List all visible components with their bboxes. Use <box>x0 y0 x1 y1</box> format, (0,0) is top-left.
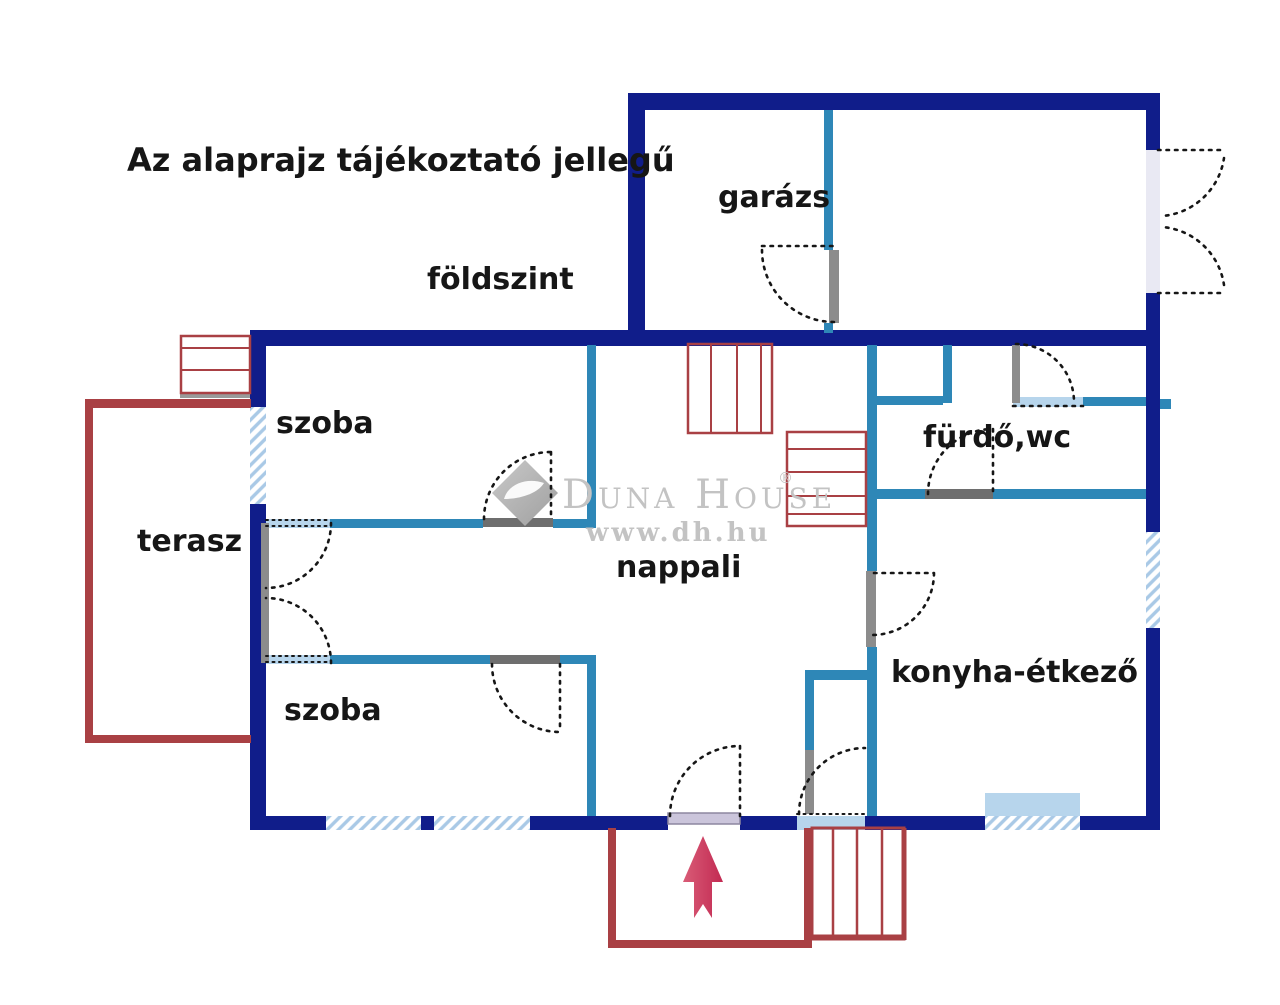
watermark: Duna House ® www.dh.hu <box>492 460 836 548</box>
entrance-arrow-icon <box>683 836 723 918</box>
garage-double-door-opening <box>1146 150 1160 293</box>
room-label-room-bottom: szoba <box>284 693 382 728</box>
terrace-door-swing-bottom <box>266 598 331 663</box>
room-label-terrace: terasz <box>137 524 242 559</box>
window-bottom-1 <box>326 816 421 830</box>
kitchen-door-swing <box>872 573 934 635</box>
window-left-wall <box>250 407 266 504</box>
floor-plan-page: Duna House ® www.dh.hu Az alaprajz tájék… <box>0 0 1280 1005</box>
vestibule-door-panel <box>805 750 814 814</box>
room-label-kitchen: konyha-étkező <box>891 655 1138 690</box>
terrace-door-swing-top <box>266 523 331 588</box>
garage-door-swing <box>762 246 834 322</box>
terrace-door-panel <box>261 523 269 663</box>
front-door-sill <box>668 813 740 824</box>
bath-door-threshold <box>925 489 993 499</box>
bath-hall-door-swing <box>1013 344 1083 406</box>
floor-title: földszint <box>427 262 574 297</box>
stairs-terrace <box>181 336 250 393</box>
watermark-registered: ® <box>778 469 793 487</box>
windows <box>250 407 1160 830</box>
garage-door-panel <box>829 250 839 323</box>
room-bottom-door-threshold <box>490 655 560 664</box>
front-door-swing <box>670 746 740 816</box>
room-bottom-door-swing <box>492 664 560 732</box>
watermark-url: www.dh.hu <box>585 518 771 548</box>
garage-double-door-swing <box>1158 150 1224 293</box>
bath-hall-door-panel <box>1012 345 1020 403</box>
floor-plan-canvas: Duna House ® www.dh.hu Az alaprajz tájék… <box>0 0 1280 1005</box>
room-label-garage: garázs <box>718 180 830 215</box>
room-top-door-threshold <box>483 518 553 527</box>
terrace-walls <box>85 399 251 743</box>
exterior-walls <box>250 93 1160 830</box>
window-bottom-2 <box>434 816 530 830</box>
room-label-room-top: szoba <box>276 406 374 441</box>
window-bottom-3 <box>985 816 1080 830</box>
kitchen-window-sill <box>985 793 1080 816</box>
window-right-wall <box>1146 532 1160 628</box>
stairs-entrance <box>812 828 906 940</box>
room-label-bathroom: fürdő,wc <box>923 420 1071 455</box>
watermark-brand: Duna House <box>562 472 836 518</box>
interior-walls <box>330 110 1171 816</box>
room-label-living: nappali <box>616 550 741 585</box>
stairs-hall-flight1 <box>688 344 772 433</box>
disclaimer-text: Az alaprajz tájékoztató jellegű <box>127 141 675 179</box>
